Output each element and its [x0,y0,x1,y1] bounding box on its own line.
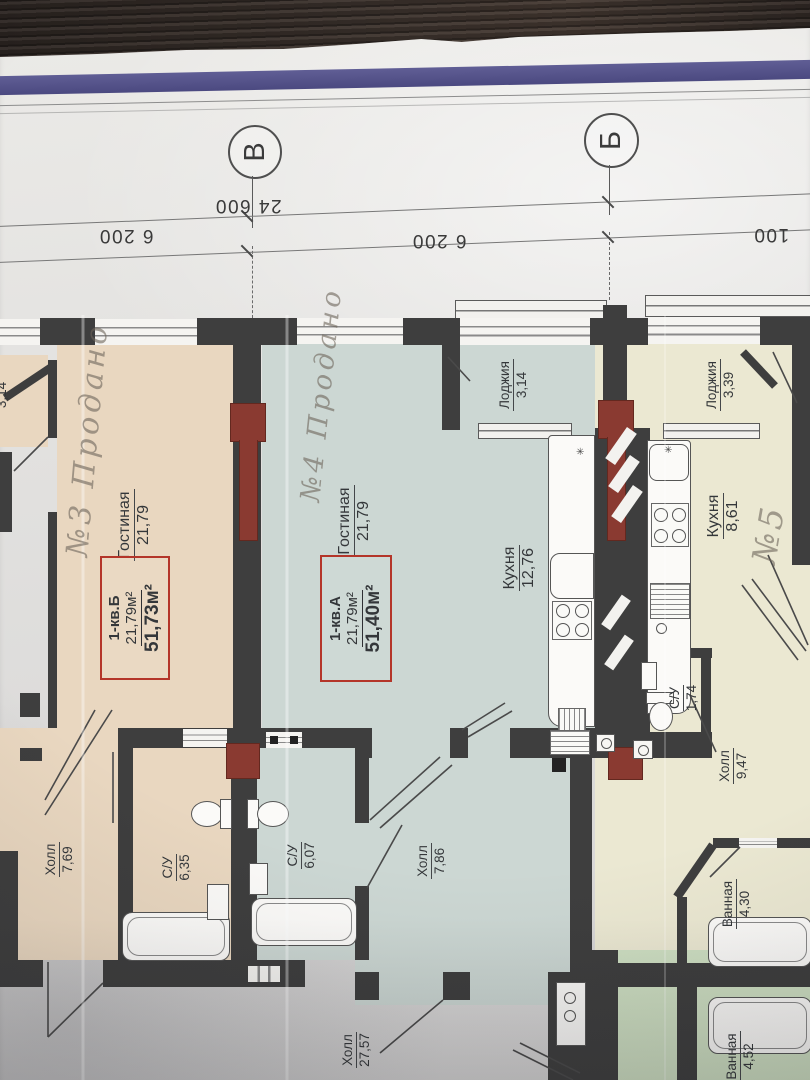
label-su-174: С/У 1,74 [668,674,698,722]
unit-label-apt-b: 1-кв.Б 21,79м² 51,73м² [100,556,170,680]
grid-letter-v: В [230,127,280,177]
unit-number: 1-кв.Б [107,596,124,641]
grid-stem-b [609,165,610,215]
unit-label-apt-a: 1-кв.А 21,79м² 51,40м² [320,555,392,682]
room-area: 1,74 [684,685,699,711]
room-area: 4,52 [741,1043,756,1069]
grid-bubble-v: В [228,125,282,179]
room-area: 7,86 [432,848,447,874]
room-name: С/У [667,685,683,711]
floor-plan: ✳ ✳ [0,255,810,1080]
room-name: Ванная [720,879,736,929]
room-area: 8,61 [724,500,742,531]
label-bath-430: Ванная 4,30 [718,865,754,943]
dim-text-24600: 24 600 [196,194,300,216]
room-area: 6,07 [302,842,317,868]
room-area: 7,69 [60,846,75,872]
room-area: 3,14 [0,382,10,408]
photo-of-floor-plan: В Б 6 200 24 600 6 200 100 [0,0,810,1080]
label-loggia-a: Лоджия 3,14 [496,348,530,422]
room-name: Холл [340,1032,356,1068]
room-name: Холл [415,843,431,879]
label-hall-947: Холл 9,47 [716,740,750,792]
room-name: С/У [160,854,176,880]
room-name: Кухня [705,493,724,540]
label-su-635: С/У 6,35 [160,840,192,895]
unit-living-area: 21,79м² [345,590,363,647]
room-area: 21,79 [135,505,153,545]
unit-number: 1-кв.А [328,596,345,641]
grid-letter-b: Б [586,115,637,166]
unit-living-area: 21,79м² [124,590,142,647]
label-su-607: С/У 6,07 [285,828,317,883]
room-area: 6,35 [177,854,192,880]
dim-text-6200-mid: 6 200 [383,229,495,251]
room-area: 4,30 [737,891,752,917]
room-area: 21,79 [355,501,373,541]
dim-text-6200-left: 6 200 [70,224,182,246]
room-area: 3,39 [721,372,736,398]
room-name: Кухня [501,545,520,592]
room-area: 12,76 [520,548,538,588]
label-hall-769: Холл 7,69 [42,828,76,891]
room-name: Лоджия [704,359,720,411]
room-area: 27,57 [357,1033,372,1067]
label-kitchen-5: Кухня 8,61 [706,487,740,545]
room-name: Гостиная [116,489,135,560]
unit-total-area: 51,40м² [363,585,384,653]
label-kitchen-a: Кухня 12,76 [500,536,538,600]
label-hall-786: Холл 7,86 [413,832,449,890]
unit-total-area: 51,73м² [142,584,163,652]
room-name: Ванная [724,1031,740,1080]
grid-bubble-b: Б [584,113,639,168]
room-area: 3,14 [514,372,529,398]
room-name: Холл [717,748,733,784]
dim-text-100: 100 [740,223,802,245]
label-bath-452: Ванная 4,52 [722,1018,758,1080]
room-name: Лоджия [497,359,513,411]
room-area: 9,47 [734,753,749,779]
room-name: С/У [285,842,301,868]
label-loggia-5: Лоджия 3,39 [702,348,738,422]
room-name: Холл [43,842,59,878]
label-common-hall: Холл 27,57 [338,1022,374,1078]
label-neighbor-loggia: 3,14 [0,373,10,417]
